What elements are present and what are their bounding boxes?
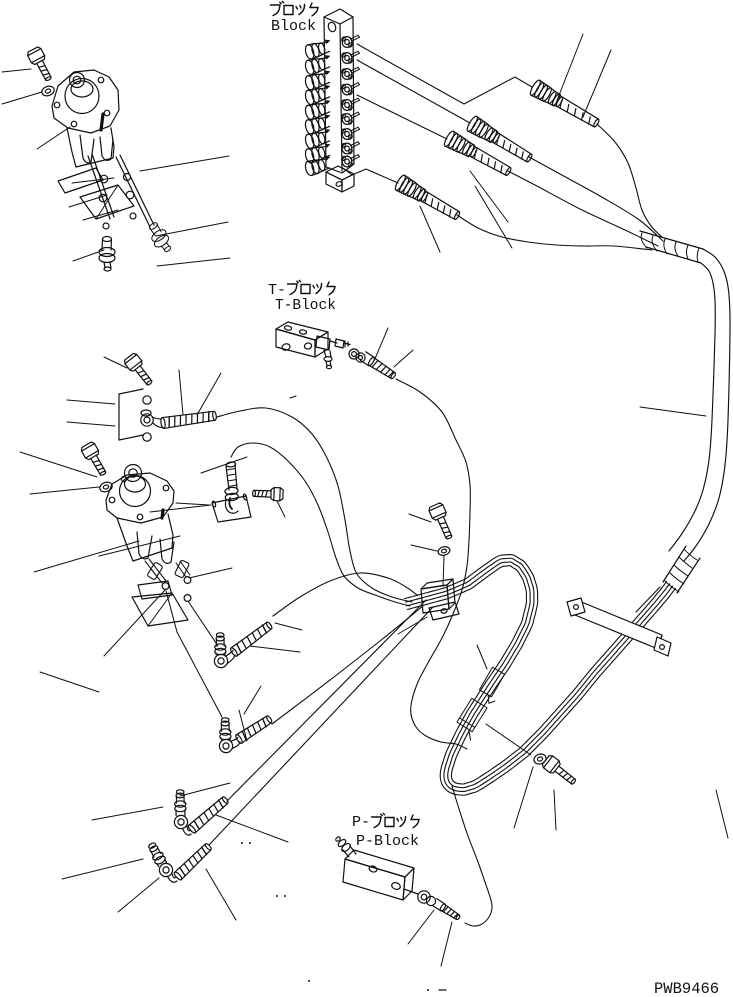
svg-text:PWB9466: PWB9466 <box>654 980 719 997</box>
svg-text:P-: P- <box>352 814 370 831</box>
svg-text:P-Block: P-Block <box>356 833 419 850</box>
svg-text:T-: T- <box>268 282 286 299</box>
svg-text:Block: Block <box>271 18 316 35</box>
svg-text:T-Block: T-Block <box>275 298 336 314</box>
